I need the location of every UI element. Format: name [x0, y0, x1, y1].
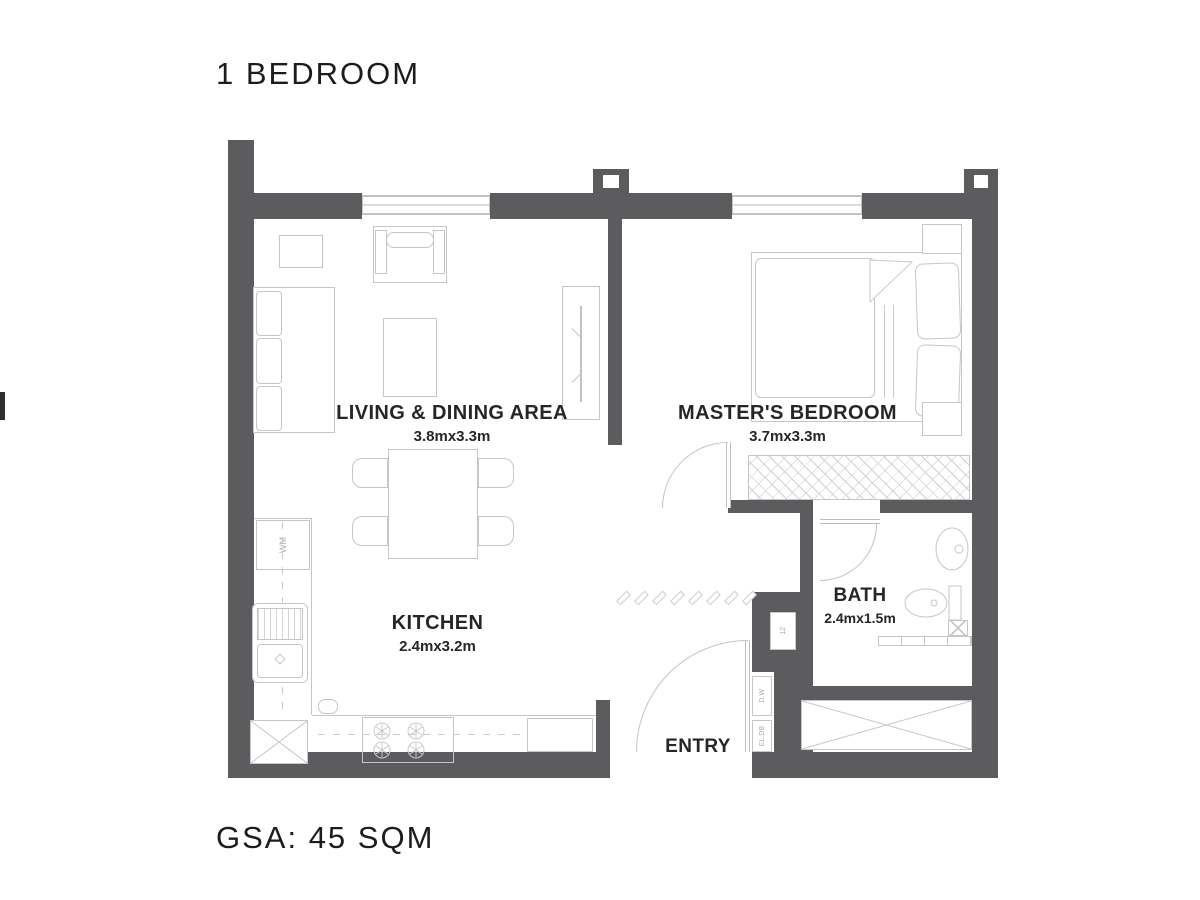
page-title: 1 BEDROOM — [216, 56, 420, 92]
bath-label: BATH 2.4mx1.5m — [790, 585, 930, 626]
kitchen-small-fixture — [318, 699, 338, 714]
burner — [373, 722, 391, 740]
floor-plan-page: 1 BEDROOM GSA: 45 SQM 12 D.W EL.DB — [0, 0, 1200, 900]
side-table — [279, 235, 323, 268]
bath-door-arc — [820, 524, 877, 581]
edge-artifact — [0, 392, 5, 420]
floor-hatch-mark — [634, 591, 649, 606]
duct-lower-label: EL.DB — [759, 726, 766, 746]
wall-top-b — [490, 193, 732, 219]
kitchen-corner-unit — [250, 720, 308, 764]
sofa-cushion — [256, 291, 282, 336]
dining-chair — [478, 458, 514, 488]
wall-right — [972, 219, 998, 778]
entry-wardrobe — [801, 700, 972, 750]
washing-machine: WM — [256, 520, 310, 570]
x-mark — [802, 701, 971, 749]
entry-name: ENTRY — [650, 736, 746, 758]
bath-dims: 2.4mx1.5m — [790, 610, 930, 626]
floor-drain — [948, 620, 968, 636]
living-room-dims: 3.8mx3.3m — [292, 428, 612, 445]
sofa-cushion — [256, 386, 282, 431]
pillow — [915, 262, 962, 339]
bedroom-wardrobe — [748, 455, 970, 500]
living-room-label: LIVING & DINING AREA 3.8mx3.3m — [292, 402, 612, 445]
duct-upper-label: D.W — [759, 689, 766, 703]
entry-label: ENTRY — [650, 736, 746, 758]
armchair-arm-right — [433, 230, 445, 274]
floor-hatch-mark — [724, 591, 739, 606]
dining-chair — [352, 458, 388, 488]
wall-top-c — [862, 193, 998, 219]
kitchen-name: KITCHEN — [340, 612, 535, 635]
floor-hatch-mark — [652, 591, 667, 606]
wall-entry-jamb — [596, 700, 610, 752]
dining-chair — [352, 516, 388, 546]
sink-drainboard — [257, 608, 303, 640]
burner — [407, 722, 425, 740]
kitchen-label: KITCHEN 2.4mx3.2m — [340, 612, 535, 655]
column-duct-inset — [974, 175, 988, 188]
tv-screen — [580, 306, 582, 402]
column-duct-inset — [603, 175, 619, 188]
duct-box-lower: EL.DB — [752, 720, 772, 752]
dining-table — [388, 449, 478, 559]
armchair-arm-left — [375, 230, 387, 274]
bedroom-door-arc — [662, 442, 728, 508]
duct-box-upper: D.W — [752, 676, 772, 716]
nightstand — [922, 224, 962, 254]
burner — [407, 741, 425, 759]
bedroom-label: MASTER'S BEDROOM 3.7mx3.3m — [640, 402, 935, 445]
bedroom-name: MASTER'S BEDROOM — [640, 402, 935, 425]
wall-bedroom-bottom-a — [728, 500, 813, 513]
coffee-table — [383, 318, 437, 397]
wall-bedroom-bottom-b — [880, 500, 972, 513]
shower-tray-edge — [878, 636, 972, 646]
wall-bottom-right — [752, 752, 998, 778]
bed-frame-line — [884, 305, 885, 398]
armchair-back-cushion — [386, 232, 434, 248]
sofa-cushion — [256, 338, 282, 384]
wall-top-a — [254, 193, 362, 219]
dining-chair — [478, 516, 514, 546]
x-mark — [251, 721, 307, 763]
blanket-fold — [868, 258, 914, 304]
bedroom-dims: 3.7mx3.3m — [640, 428, 935, 445]
floor-hatch-mark — [706, 591, 721, 606]
floor-hatch-mark — [616, 591, 631, 606]
living-room-name: LIVING & DINING AREA — [292, 402, 612, 425]
oven — [527, 718, 593, 752]
kitchen-dims: 2.4mx3.2m — [340, 638, 535, 655]
floor-hatch-mark — [688, 591, 703, 606]
shaft-label: 12 — [780, 627, 787, 635]
washing-machine-label: WM — [279, 537, 288, 553]
bed-mattress — [755, 258, 875, 398]
floor-hatch-mark — [670, 591, 685, 606]
bath-basin — [933, 526, 971, 572]
burner — [373, 741, 391, 759]
window-living — [362, 195, 490, 215]
area-label: GSA: 45 SQM — [216, 820, 434, 856]
window-bedroom — [732, 195, 862, 215]
bed-frame-line — [893, 305, 894, 398]
bath-name: BATH — [790, 585, 930, 607]
wall-left — [228, 140, 254, 778]
